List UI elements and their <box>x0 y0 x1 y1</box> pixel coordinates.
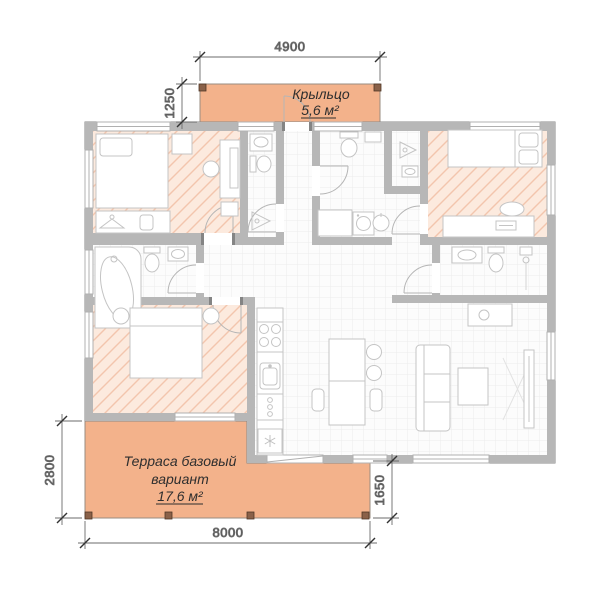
fireplace-icon <box>468 304 512 326</box>
dining-table-icon <box>329 339 365 425</box>
counter-icon <box>318 210 352 236</box>
small-sink-icon <box>402 166 418 177</box>
window <box>547 332 555 380</box>
toilet-icon <box>488 247 504 272</box>
chair-icon <box>367 345 382 360</box>
pillow-icon <box>519 150 538 164</box>
wall <box>240 131 248 241</box>
shelf-icon <box>365 132 381 142</box>
monitor-icon <box>230 148 238 188</box>
wall <box>247 305 255 463</box>
dim-terrace-right-depth-value: 1650 <box>372 475 387 506</box>
wall <box>312 237 392 245</box>
dim-terrace-width-value: 8000 <box>213 525 244 540</box>
chair-icon <box>203 161 219 177</box>
wall <box>196 245 204 263</box>
wall <box>432 245 440 263</box>
dim-top-width-value: 4900 <box>275 39 306 54</box>
window <box>413 455 489 463</box>
terrace-title-line2: вариант <box>151 471 209 487</box>
wall <box>85 233 203 245</box>
terrace-area: 17,6 м² <box>157 488 204 504</box>
porch-deck <box>200 84 380 122</box>
washing-machine-icon <box>353 212 374 235</box>
window <box>353 455 387 463</box>
post-icon <box>374 84 381 91</box>
window <box>85 150 93 208</box>
porch-area: 5,6 м² <box>301 102 340 118</box>
dim-terrace-width: 8000 <box>78 521 377 549</box>
wall <box>241 297 255 305</box>
post-icon <box>247 512 254 519</box>
post-icon <box>165 512 172 519</box>
pillow-icon <box>100 138 132 156</box>
desk-icon <box>443 216 534 237</box>
dim-terrace-height-value: 2800 <box>42 455 57 486</box>
toilet-icon <box>144 247 160 272</box>
chair-icon <box>312 389 324 411</box>
wall <box>420 237 547 245</box>
window <box>547 165 555 215</box>
fridge-icon <box>258 429 282 453</box>
wall <box>276 131 284 204</box>
terrace-door <box>267 455 323 463</box>
window <box>85 250 93 294</box>
coffee-table-icon <box>458 368 488 405</box>
porch-area <box>199 84 381 122</box>
window <box>238 122 274 131</box>
dim-terrace-right-depth: 1650 <box>372 454 399 525</box>
post-icon <box>362 512 369 519</box>
cabinet-icon <box>221 202 238 216</box>
post-icon <box>199 84 206 91</box>
wall <box>233 233 248 245</box>
dim-terrace-height: 2800 <box>42 414 82 525</box>
wall <box>384 186 428 194</box>
dim-porch-depth: 1250 <box>162 77 197 129</box>
window <box>175 413 235 421</box>
nightstand-icon <box>113 308 129 324</box>
wall <box>312 131 320 166</box>
sink-icon <box>452 247 482 263</box>
chair-icon <box>367 366 382 381</box>
kitchen-sink-icon <box>260 363 280 389</box>
terrace-title-line1: Терраса базовый <box>124 453 237 469</box>
porch-title: Крыльцо <box>292 86 350 102</box>
floor-plan-page: 4900 1250 2800 <box>0 0 600 600</box>
floor-plan-drawing: 4900 1250 2800 <box>0 0 600 600</box>
window <box>314 122 362 131</box>
chair-icon <box>500 202 524 216</box>
sofa-icon <box>416 345 450 431</box>
dim-porch-depth-value: 1250 <box>162 88 177 119</box>
wall <box>248 237 284 245</box>
sink-icon <box>168 247 188 261</box>
nightstand-icon <box>203 308 219 324</box>
wall <box>392 295 547 303</box>
window <box>85 312 93 358</box>
toilet-icon <box>340 132 358 157</box>
kitchen-counter <box>257 308 283 455</box>
window <box>97 122 170 131</box>
chair-icon <box>370 389 382 411</box>
sink-icon <box>250 134 272 151</box>
wardrobe-icon <box>96 211 170 233</box>
post-icon <box>85 512 92 519</box>
toilet-icon <box>250 156 271 172</box>
nightstand-icon <box>172 134 192 154</box>
bed-icon <box>130 308 202 378</box>
dim-top-width: 4900 <box>193 39 387 81</box>
wall <box>384 131 392 194</box>
pillow-icon <box>519 133 538 147</box>
